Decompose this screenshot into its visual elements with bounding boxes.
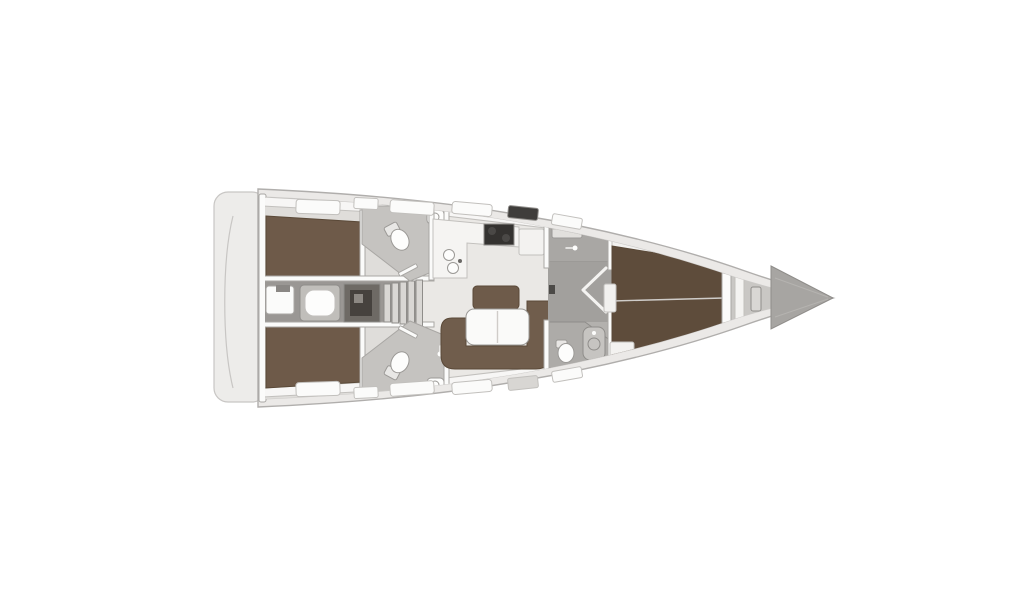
galley-sink [448,263,459,274]
salon-bulkhead-bottom [544,320,549,392]
deck-hatch [354,197,379,209]
aft-berth-bottom [266,323,362,388]
step-tread [416,280,423,326]
deck-hatch [354,386,379,398]
stove-burner [502,234,510,242]
galley-faucet [458,259,462,263]
aft-berth-top [266,216,362,279]
transom-wall [259,194,266,402]
engine-box-cover [305,290,335,316]
deck-hatch [296,381,340,397]
stern-locker-latch [276,285,290,292]
deck-hatch-gray [507,375,538,390]
step-tread [384,284,391,322]
engine-detail [354,294,363,303]
stove-cooktop [484,224,514,245]
fridge-counter [519,229,544,255]
shower-head-icon [592,331,596,335]
salon-bench [473,286,519,309]
forepeak-hatch [735,273,744,323]
skylight-top-head [390,199,435,215]
bow [771,266,833,329]
dark-deck-hatch [507,205,538,220]
anchor-well [751,287,761,311]
companionway-steps [384,280,423,326]
bow-wedge [771,266,833,329]
yacht-layout-plan [0,0,1024,600]
toilet-bowl [558,344,574,363]
cabin-entry-step [604,284,616,312]
step-tread [392,283,399,323]
step-tread [400,282,407,324]
deck-hatch [296,199,340,215]
aft-cabin-bottom [266,322,365,392]
switch-panel [549,285,555,294]
passage [548,262,612,322]
door-knob [573,246,578,251]
stove-burner [488,227,496,235]
skylight-bottom-head [390,380,435,396]
step-tread [408,281,415,325]
galley-sink [444,250,455,261]
